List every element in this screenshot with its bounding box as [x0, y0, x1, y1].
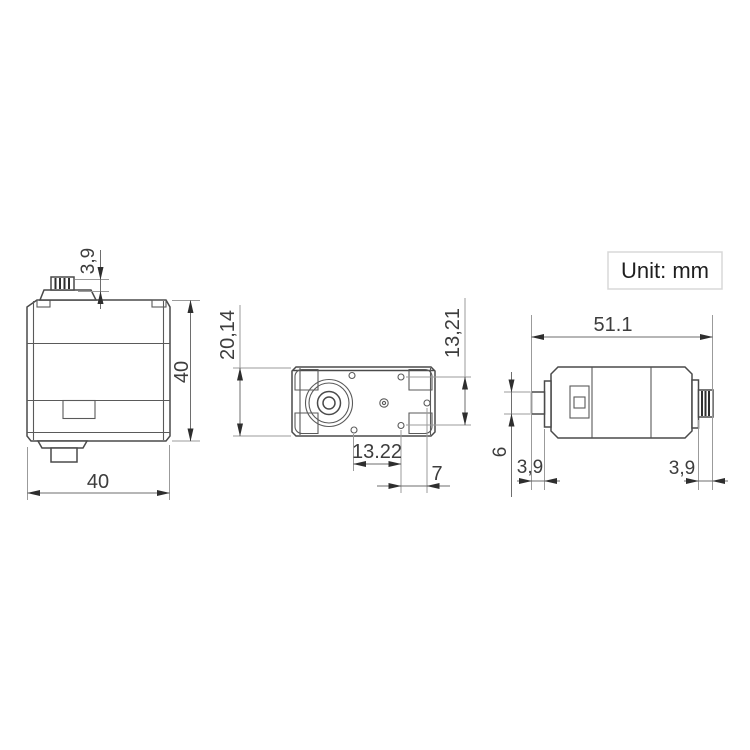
dim-label-front-shaft-length: 3,9 [517, 457, 543, 478]
dimension-top-depth: 20,14 [217, 305, 291, 436]
front-shaft-flange [545, 381, 552, 427]
dim-label-front-height: 40 [171, 361, 193, 383]
servo-body-front-outline [27, 300, 170, 441]
rear-flange [692, 380, 699, 428]
unit-label: Unit: mm [621, 258, 709, 283]
dimension-front-shaft-length: 3,9 [517, 429, 560, 490]
bottom-plug [51, 448, 77, 462]
front-view: 3,9 40 40 [27, 248, 200, 500]
servo-dimension-drawing: 3,9 40 40 [0, 0, 750, 750]
dimension-front-height: 40 [171, 301, 200, 442]
servo-body-side-outline [551, 367, 692, 438]
dim-label-shaft-diameter: 6 [490, 447, 511, 458]
dimension-shaft-diameter: 6 [490, 372, 530, 497]
top-view: 20,14 13,21 13.22 7 [217, 298, 471, 493]
dim-label-spline-length: 3,9 [669, 458, 695, 479]
dim-label-hole-span-horizontal: 13.22 [352, 441, 402, 463]
dim-label-hole-span-vertical: 13,21 [442, 308, 464, 358]
drawing-canvas: 3,9 40 40 [0, 0, 750, 750]
dim-label-front-width: 40 [87, 471, 109, 493]
dim-label-top-depth: 20,14 [217, 310, 239, 360]
dimension-front-width: 40 [28, 445, 170, 500]
bottom-flange [38, 441, 87, 448]
dim-label-front-spline-height: 3,9 [78, 248, 99, 274]
spline-shaft-front [51, 277, 74, 290]
dim-label-hole-edge-offset: 7 [431, 463, 442, 485]
dimension-hole-span-horizontal: 13.22 [352, 430, 402, 493]
dim-label-total-length: 51.1 [594, 314, 633, 336]
unit-box: Unit: mm [608, 252, 722, 289]
front-shaft [532, 392, 545, 414]
side-view: 51.1 6 3,9 3,9 [490, 314, 728, 497]
spline-shaft-side [699, 390, 714, 417]
